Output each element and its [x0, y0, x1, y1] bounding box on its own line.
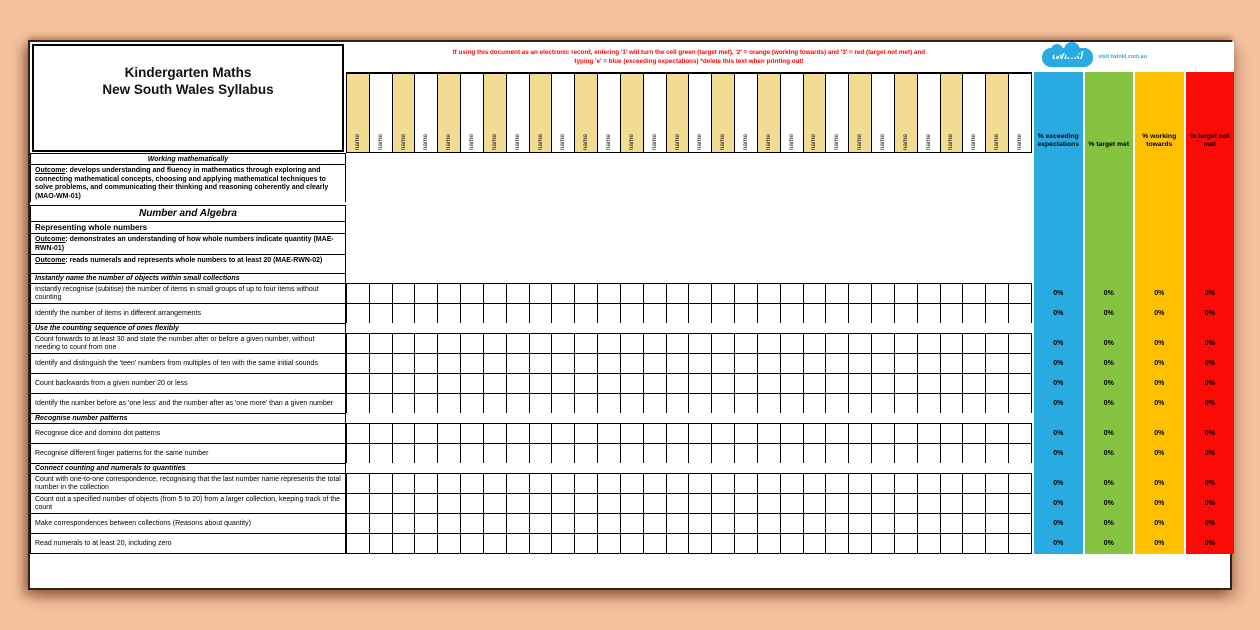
grid-cell[interactable]	[483, 443, 507, 464]
grid-cell[interactable]	[1008, 493, 1032, 514]
grid-cell[interactable]	[369, 373, 393, 394]
name-column-header[interactable]: name	[437, 74, 460, 152]
grid-cell[interactable]	[894, 513, 918, 534]
grid-cell[interactable]	[871, 533, 895, 554]
grid-cell[interactable]	[688, 533, 712, 554]
grid-cell[interactable]	[620, 303, 644, 324]
grid-cell[interactable]	[414, 513, 438, 534]
grid-cell[interactable]	[825, 513, 849, 534]
grid-cell[interactable]	[574, 393, 598, 414]
grid-cell[interactable]	[871, 493, 895, 514]
grid-cell[interactable]	[346, 473, 370, 494]
grid-cell[interactable]	[551, 373, 575, 394]
grid-cell[interactable]	[506, 333, 530, 354]
grid-cell[interactable]	[460, 513, 484, 534]
grid-cell[interactable]	[985, 473, 1009, 494]
grid-cell[interactable]	[460, 423, 484, 444]
grid-cell[interactable]	[460, 373, 484, 394]
grid-cell[interactable]	[894, 303, 918, 324]
grid-cell[interactable]	[414, 393, 438, 414]
grid-cell[interactable]	[574, 513, 598, 534]
grid-cell[interactable]	[483, 423, 507, 444]
grid-cell[interactable]	[848, 333, 872, 354]
name-column-header[interactable]: name	[734, 74, 757, 152]
grid-cell[interactable]	[529, 283, 553, 304]
grid-cell[interactable]	[985, 423, 1009, 444]
grid-cell[interactable]	[711, 493, 735, 514]
grid-cell[interactable]	[894, 423, 918, 444]
grid-cell[interactable]	[506, 303, 530, 324]
grid-cell[interactable]	[529, 533, 553, 554]
grid-cell[interactable]	[962, 283, 986, 304]
grid-cell[interactable]	[803, 353, 827, 374]
grid-cell[interactable]	[1008, 393, 1032, 414]
grid-cell[interactable]	[551, 513, 575, 534]
grid-cell[interactable]	[825, 493, 849, 514]
grid-cell[interactable]	[620, 283, 644, 304]
grid-cell[interactable]	[597, 353, 621, 374]
grid-cell[interactable]	[529, 513, 553, 534]
grid-cell[interactable]	[437, 533, 461, 554]
grid-cell[interactable]	[483, 283, 507, 304]
grid-cell[interactable]	[666, 423, 690, 444]
grid-cell[interactable]	[780, 423, 804, 444]
name-column-header[interactable]: name	[369, 74, 392, 152]
name-column-header[interactable]: name	[803, 74, 826, 152]
grid-cell[interactable]	[437, 283, 461, 304]
grid-cell[interactable]	[825, 423, 849, 444]
grid-cell[interactable]	[460, 333, 484, 354]
grid-cell[interactable]	[643, 353, 667, 374]
grid-cell[interactable]	[917, 283, 941, 304]
grid-cell[interactable]	[734, 283, 758, 304]
grid-cell[interactable]	[574, 353, 598, 374]
name-column-header[interactable]: name	[551, 74, 574, 152]
grid-cell[interactable]	[780, 353, 804, 374]
name-column-header[interactable]: name	[643, 74, 666, 152]
grid-cell[interactable]	[369, 353, 393, 374]
grid-cell[interactable]	[688, 423, 712, 444]
grid-cell[interactable]	[688, 493, 712, 514]
grid-cell[interactable]	[597, 423, 621, 444]
grid-cell[interactable]	[848, 443, 872, 464]
name-column-header[interactable]: name	[825, 74, 848, 152]
grid-cell[interactable]	[757, 513, 781, 534]
name-column-header[interactable]: name	[392, 74, 415, 152]
grid-cell[interactable]	[985, 333, 1009, 354]
grid-cell[interactable]	[757, 303, 781, 324]
grid-cell[interactable]	[597, 513, 621, 534]
grid-cell[interactable]	[711, 283, 735, 304]
grid-cell[interactable]	[346, 443, 370, 464]
grid-cell[interactable]	[483, 333, 507, 354]
grid-cell[interactable]	[917, 333, 941, 354]
grid-cell[interactable]	[917, 393, 941, 414]
grid-cell[interactable]	[985, 283, 1009, 304]
grid-cell[interactable]	[506, 533, 530, 554]
grid-cell[interactable]	[529, 443, 553, 464]
grid-cell[interactable]	[688, 373, 712, 394]
grid-cell[interactable]	[917, 473, 941, 494]
grid-cell[interactable]	[894, 443, 918, 464]
grid-cell[interactable]	[780, 303, 804, 324]
grid-cell[interactable]	[414, 283, 438, 304]
grid-cell[interactable]	[392, 303, 416, 324]
grid-cell[interactable]	[346, 283, 370, 304]
grid-cell[interactable]	[962, 513, 986, 534]
grid-cell[interactable]	[620, 393, 644, 414]
name-column-header[interactable]: name	[666, 74, 689, 152]
name-column-header[interactable]: name	[917, 74, 940, 152]
grid-cell[interactable]	[483, 303, 507, 324]
grid-cell[interactable]	[574, 473, 598, 494]
grid-cell[interactable]	[620, 533, 644, 554]
grid-cell[interactable]	[848, 473, 872, 494]
grid-cell[interactable]	[666, 283, 690, 304]
grid-cell[interactable]	[962, 353, 986, 374]
grid-cell[interactable]	[825, 353, 849, 374]
grid-cell[interactable]	[985, 443, 1009, 464]
grid-cell[interactable]	[871, 393, 895, 414]
grid-cell[interactable]	[825, 473, 849, 494]
grid-cell[interactable]	[369, 303, 393, 324]
grid-cell[interactable]	[551, 393, 575, 414]
grid-cell[interactable]	[460, 303, 484, 324]
grid-cell[interactable]	[369, 493, 393, 514]
grid-cell[interactable]	[917, 533, 941, 554]
grid-cell[interactable]	[940, 303, 964, 324]
grid-cell[interactable]	[574, 283, 598, 304]
grid-cell[interactable]	[574, 303, 598, 324]
grid-cell[interactable]	[392, 393, 416, 414]
grid-cell[interactable]	[666, 473, 690, 494]
grid-cell[interactable]	[734, 353, 758, 374]
name-column-header[interactable]: name	[848, 74, 871, 152]
grid-cell[interactable]	[825, 303, 849, 324]
grid-cell[interactable]	[940, 473, 964, 494]
grid-cell[interactable]	[620, 473, 644, 494]
grid-cell[interactable]	[917, 443, 941, 464]
grid-cell[interactable]	[666, 353, 690, 374]
grid-cell[interactable]	[803, 333, 827, 354]
grid-cell[interactable]	[734, 443, 758, 464]
grid-cell[interactable]	[780, 333, 804, 354]
grid-cell[interactable]	[506, 423, 530, 444]
grid-cell[interactable]	[620, 353, 644, 374]
grid-cell[interactable]	[940, 493, 964, 514]
grid-cell[interactable]	[392, 283, 416, 304]
grid-cell[interactable]	[506, 473, 530, 494]
grid-cell[interactable]	[506, 353, 530, 374]
name-column-header[interactable]: name	[414, 74, 437, 152]
grid-cell[interactable]	[643, 333, 667, 354]
grid-cell[interactable]	[757, 373, 781, 394]
name-column-header[interactable]: name	[757, 74, 780, 152]
grid-cell[interactable]	[848, 303, 872, 324]
grid-cell[interactable]	[734, 373, 758, 394]
grid-cell[interactable]	[871, 353, 895, 374]
grid-cell[interactable]	[985, 303, 1009, 324]
name-column-header[interactable]: name	[529, 74, 552, 152]
grid-cell[interactable]	[848, 533, 872, 554]
grid-cell[interactable]	[483, 353, 507, 374]
grid-cell[interactable]	[871, 373, 895, 394]
grid-cell[interactable]	[985, 533, 1009, 554]
grid-cell[interactable]	[1008, 513, 1032, 534]
grid-cell[interactable]	[597, 473, 621, 494]
grid-cell[interactable]	[437, 423, 461, 444]
grid-cell[interactable]	[825, 393, 849, 414]
grid-cell[interactable]	[574, 373, 598, 394]
grid-cell[interactable]	[688, 443, 712, 464]
grid-cell[interactable]	[597, 443, 621, 464]
grid-cell[interactable]	[688, 333, 712, 354]
grid-cell[interactable]	[780, 493, 804, 514]
grid-cell[interactable]	[711, 333, 735, 354]
grid-cell[interactable]	[529, 333, 553, 354]
grid-cell[interactable]	[917, 493, 941, 514]
grid-cell[interactable]	[940, 283, 964, 304]
grid-cell[interactable]	[780, 473, 804, 494]
grid-cell[interactable]	[643, 533, 667, 554]
grid-cell[interactable]	[688, 283, 712, 304]
grid-cell[interactable]	[460, 283, 484, 304]
grid-cell[interactable]	[392, 443, 416, 464]
grid-cell[interactable]	[437, 373, 461, 394]
grid-cell[interactable]	[529, 393, 553, 414]
grid-cell[interactable]	[734, 333, 758, 354]
grid-cell[interactable]	[780, 393, 804, 414]
name-column-header[interactable]: name	[620, 74, 643, 152]
grid-cell[interactable]	[962, 373, 986, 394]
grid-cell[interactable]	[1008, 443, 1032, 464]
grid-cell[interactable]	[597, 373, 621, 394]
grid-cell[interactable]	[894, 333, 918, 354]
grid-cell[interactable]	[711, 423, 735, 444]
grid-cell[interactable]	[962, 493, 986, 514]
grid-cell[interactable]	[643, 513, 667, 534]
grid-cell[interactable]	[734, 513, 758, 534]
grid-cell[interactable]	[940, 333, 964, 354]
grid-cell[interactable]	[369, 473, 393, 494]
grid-cell[interactable]	[711, 473, 735, 494]
grid-cell[interactable]	[803, 533, 827, 554]
grid-cell[interactable]	[985, 373, 1009, 394]
name-column-header[interactable]: name	[1008, 74, 1032, 152]
grid-cell[interactable]	[437, 303, 461, 324]
grid-cell[interactable]	[871, 473, 895, 494]
grid-cell[interactable]	[940, 393, 964, 414]
grid-cell[interactable]	[894, 533, 918, 554]
grid-cell[interactable]	[803, 303, 827, 324]
grid-cell[interactable]	[346, 393, 370, 414]
grid-cell[interactable]	[346, 373, 370, 394]
grid-cell[interactable]	[917, 513, 941, 534]
grid-cell[interactable]	[734, 423, 758, 444]
grid-cell[interactable]	[734, 303, 758, 324]
grid-cell[interactable]	[894, 353, 918, 374]
grid-cell[interactable]	[757, 283, 781, 304]
grid-cell[interactable]	[437, 333, 461, 354]
grid-cell[interactable]	[917, 423, 941, 444]
name-column-header[interactable]: name	[597, 74, 620, 152]
grid-cell[interactable]	[711, 373, 735, 394]
grid-cell[interactable]	[620, 493, 644, 514]
grid-cell[interactable]	[346, 423, 370, 444]
grid-cell[interactable]	[848, 393, 872, 414]
grid-cell[interactable]	[848, 283, 872, 304]
grid-cell[interactable]	[346, 533, 370, 554]
grid-cell[interactable]	[848, 353, 872, 374]
grid-cell[interactable]	[848, 423, 872, 444]
grid-cell[interactable]	[392, 423, 416, 444]
grid-cell[interactable]	[666, 533, 690, 554]
grid-cell[interactable]	[620, 333, 644, 354]
grid-cell[interactable]	[734, 473, 758, 494]
grid-cell[interactable]	[825, 373, 849, 394]
grid-cell[interactable]	[871, 423, 895, 444]
grid-cell[interactable]	[643, 423, 667, 444]
grid-cell[interactable]	[369, 283, 393, 304]
grid-cell[interactable]	[414, 493, 438, 514]
grid-cell[interactable]	[666, 513, 690, 534]
grid-cell[interactable]	[711, 393, 735, 414]
grid-cell[interactable]	[825, 283, 849, 304]
name-column-header[interactable]: name	[962, 74, 985, 152]
grid-cell[interactable]	[414, 443, 438, 464]
grid-cell[interactable]	[597, 393, 621, 414]
grid-cell[interactable]	[871, 283, 895, 304]
grid-cell[interactable]	[643, 493, 667, 514]
grid-cell[interactable]	[985, 513, 1009, 534]
grid-cell[interactable]	[848, 513, 872, 534]
grid-cell[interactable]	[392, 353, 416, 374]
grid-cell[interactable]	[1008, 473, 1032, 494]
grid-cell[interactable]	[666, 443, 690, 464]
grid-cell[interactable]	[985, 493, 1009, 514]
grid-cell[interactable]	[414, 333, 438, 354]
grid-cell[interactable]	[620, 443, 644, 464]
grid-cell[interactable]	[711, 443, 735, 464]
grid-cell[interactable]	[529, 373, 553, 394]
grid-cell[interactable]	[803, 443, 827, 464]
grid-cell[interactable]	[551, 493, 575, 514]
grid-cell[interactable]	[666, 393, 690, 414]
grid-cell[interactable]	[437, 493, 461, 514]
grid-cell[interactable]	[962, 443, 986, 464]
grid-cell[interactable]	[506, 493, 530, 514]
grid-cell[interactable]	[506, 513, 530, 534]
grid-cell[interactable]	[483, 373, 507, 394]
grid-cell[interactable]	[529, 473, 553, 494]
grid-cell[interactable]	[985, 393, 1009, 414]
grid-cell[interactable]	[1008, 533, 1032, 554]
grid-cell[interactable]	[551, 333, 575, 354]
grid-cell[interactable]	[688, 393, 712, 414]
grid-cell[interactable]	[757, 533, 781, 554]
grid-cell[interactable]	[803, 393, 827, 414]
grid-cell[interactable]	[414, 303, 438, 324]
grid-cell[interactable]	[643, 373, 667, 394]
grid-cell[interactable]	[871, 443, 895, 464]
grid-cell[interactable]	[825, 443, 849, 464]
grid-cell[interactable]	[551, 303, 575, 324]
grid-cell[interactable]	[1008, 283, 1032, 304]
grid-cell[interactable]	[529, 303, 553, 324]
grid-cell[interactable]	[483, 473, 507, 494]
grid-cell[interactable]	[529, 353, 553, 374]
grid-cell[interactable]	[825, 333, 849, 354]
grid-cell[interactable]	[597, 303, 621, 324]
name-column-header[interactable]: name	[711, 74, 734, 152]
grid-cell[interactable]	[894, 393, 918, 414]
grid-cell[interactable]	[1008, 373, 1032, 394]
grid-cell[interactable]	[757, 353, 781, 374]
grid-cell[interactable]	[848, 373, 872, 394]
grid-cell[interactable]	[894, 473, 918, 494]
grid-cell[interactable]	[369, 423, 393, 444]
grid-cell[interactable]	[437, 473, 461, 494]
grid-cell[interactable]	[757, 333, 781, 354]
grid-cell[interactable]	[369, 533, 393, 554]
grid-cell[interactable]	[940, 513, 964, 534]
grid-cell[interactable]	[757, 443, 781, 464]
name-column-header[interactable]: name	[574, 74, 597, 152]
grid-cell[interactable]	[711, 303, 735, 324]
grid-cell[interactable]	[574, 443, 598, 464]
grid-cell[interactable]	[780, 533, 804, 554]
grid-cell[interactable]	[460, 443, 484, 464]
grid-cell[interactable]	[643, 393, 667, 414]
grid-cell[interactable]	[483, 533, 507, 554]
grid-cell[interactable]	[666, 373, 690, 394]
grid-cell[interactable]	[757, 473, 781, 494]
grid-cell[interactable]	[940, 353, 964, 374]
grid-cell[interactable]	[574, 333, 598, 354]
grid-cell[interactable]	[688, 353, 712, 374]
grid-cell[interactable]	[940, 373, 964, 394]
grid-cell[interactable]	[551, 473, 575, 494]
grid-cell[interactable]	[780, 513, 804, 534]
grid-cell[interactable]	[757, 493, 781, 514]
grid-cell[interactable]	[620, 373, 644, 394]
grid-cell[interactable]	[962, 423, 986, 444]
name-column-header[interactable]: name	[871, 74, 894, 152]
name-column-header[interactable]: name	[483, 74, 506, 152]
grid-cell[interactable]	[346, 353, 370, 374]
grid-cell[interactable]	[437, 353, 461, 374]
grid-cell[interactable]	[803, 283, 827, 304]
grid-cell[interactable]	[346, 303, 370, 324]
grid-cell[interactable]	[780, 443, 804, 464]
name-column-header[interactable]: name	[688, 74, 711, 152]
grid-cell[interactable]	[392, 473, 416, 494]
grid-cell[interactable]	[871, 303, 895, 324]
grid-cell[interactable]	[803, 473, 827, 494]
name-column-header[interactable]: name	[780, 74, 803, 152]
grid-cell[interactable]	[414, 423, 438, 444]
grid-cell[interactable]	[414, 353, 438, 374]
grid-cell[interactable]	[688, 303, 712, 324]
grid-cell[interactable]	[506, 393, 530, 414]
name-column-header[interactable]: name	[985, 74, 1008, 152]
grid-cell[interactable]	[962, 393, 986, 414]
grid-cell[interactable]	[643, 303, 667, 324]
grid-cell[interactable]	[414, 473, 438, 494]
grid-cell[interactable]	[506, 443, 530, 464]
grid-cell[interactable]	[346, 513, 370, 534]
grid-cell[interactable]	[940, 533, 964, 554]
